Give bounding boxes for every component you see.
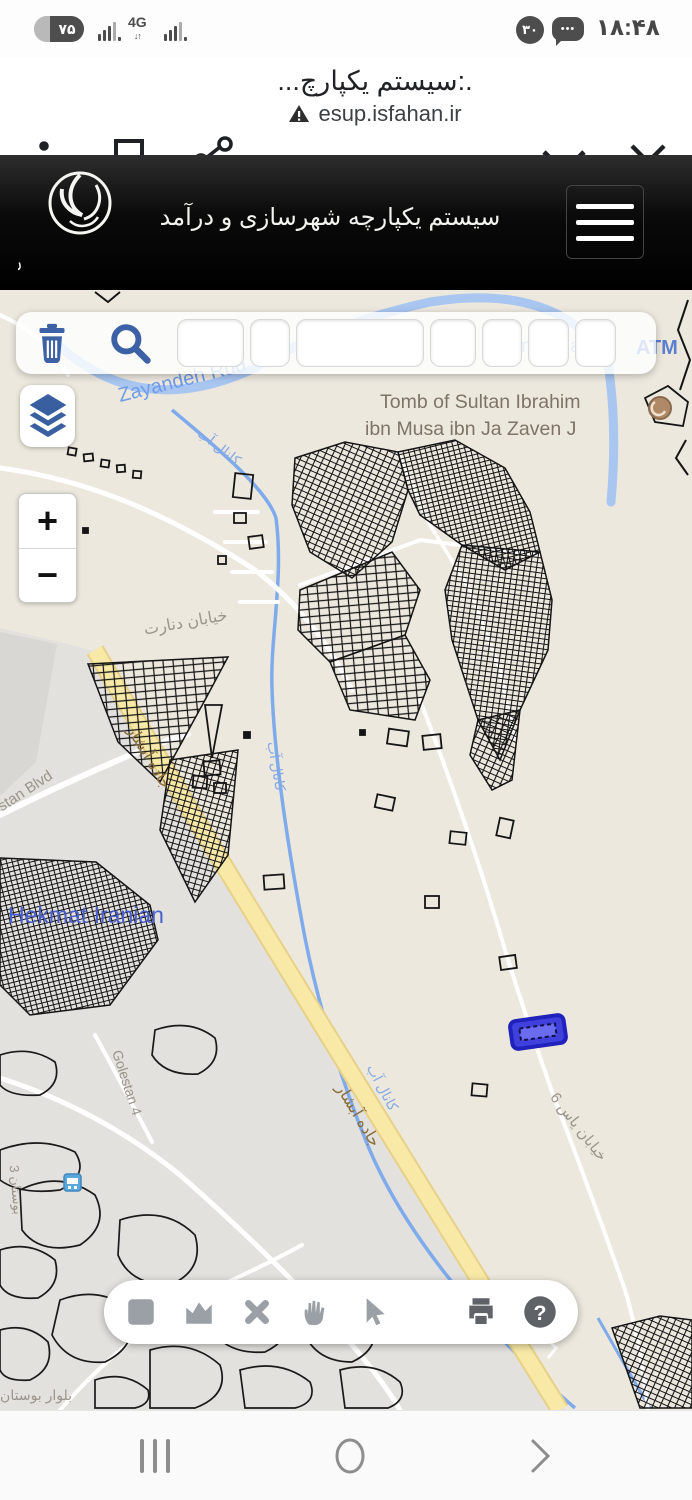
signal-icon-sim1 bbox=[98, 22, 121, 41]
status-bar: ۷۵ 4G↓↑ ۳۰ ••• ۱۸:۴۸ bbox=[0, 0, 692, 58]
selected-parcel[interactable] bbox=[509, 1014, 566, 1049]
help-icon[interactable]: ? bbox=[522, 1294, 558, 1330]
app-title: سیستم یکپارچه شهرسازی و درآمد bbox=[140, 203, 520, 232]
pan-hand-icon[interactable] bbox=[298, 1295, 332, 1329]
search-field-4[interactable] bbox=[430, 319, 476, 367]
measure-area-icon[interactable] bbox=[182, 1295, 216, 1329]
layers-button[interactable] bbox=[20, 385, 75, 447]
map-tools-toolbar: ? bbox=[104, 1280, 578, 1344]
tomb-poi-icon[interactable] bbox=[649, 397, 671, 419]
search-field-2[interactable] bbox=[250, 319, 290, 367]
search-field-3[interactable] bbox=[296, 319, 424, 367]
recents-button[interactable] bbox=[140, 1439, 170, 1473]
message-bubble-icon: ••• bbox=[552, 17, 584, 41]
search-icon[interactable] bbox=[108, 321, 152, 365]
app-header: شهرداری اصفهان سیستم یکپارچه شهرسازی و د… bbox=[0, 155, 692, 290]
browser-toolbar: .:سیستم یکپارچ... esup.isfahan.ir bbox=[0, 58, 692, 155]
page-url[interactable]: esup.isfahan.ir bbox=[318, 101, 461, 127]
search-field-5[interactable] bbox=[482, 319, 522, 367]
help-glyph: ? bbox=[533, 1301, 546, 1325]
map-label-bustan3: بلوار بوستان 3 bbox=[0, 1387, 72, 1404]
battery-percent: ۷۵ bbox=[50, 16, 84, 42]
signal-icon-sim2 bbox=[164, 22, 187, 41]
warning-icon[interactable] bbox=[288, 104, 310, 124]
logo-text: شهرداری اصفهان bbox=[18, 254, 26, 287]
page-title: .:سیستم یکپارچ... bbox=[240, 66, 510, 97]
map-container[interactable]: Saman Bank ATM Tomb of Sultan Ibrahim ib… bbox=[0, 290, 692, 1410]
map-toolbar bbox=[16, 312, 656, 374]
search-field-6[interactable] bbox=[528, 319, 569, 367]
hamburger-menu-button[interactable] bbox=[566, 185, 644, 259]
map-canvas[interactable]: Saman Bank ATM Tomb of Sultan Ibrahim ib… bbox=[0, 290, 692, 1410]
home-button[interactable] bbox=[334, 1437, 366, 1475]
map-label-hekmat: Hekmat Iranian bbox=[8, 902, 164, 928]
zoom-control: + − bbox=[18, 493, 77, 603]
bus-stop-icon[interactable] bbox=[64, 1174, 81, 1191]
search-field-1[interactable] bbox=[177, 319, 244, 367]
battery-icon: ۷۵ bbox=[34, 16, 84, 42]
map-label-tomb-1: Tomb of Sultan Ibrahim bbox=[380, 391, 581, 413]
back-button[interactable] bbox=[530, 1438, 552, 1474]
network-type-indicator: 4G↓↑ bbox=[128, 16, 147, 42]
print-icon[interactable] bbox=[464, 1295, 498, 1329]
status-time: ۱۸:۴۸ bbox=[596, 14, 686, 41]
search-field-7[interactable] bbox=[575, 319, 616, 367]
zoom-in-button[interactable]: + bbox=[19, 494, 76, 549]
zoom-out-button[interactable]: − bbox=[19, 549, 76, 603]
clear-icon[interactable] bbox=[240, 1295, 274, 1329]
phone-screen: ۷۵ 4G↓↑ ۳۰ ••• ۱۸:۴۸ .:سیستم یکپارچ... bbox=[0, 0, 692, 1500]
pointer-icon[interactable] bbox=[356, 1295, 390, 1329]
isfahan-municipality-logo: شهرداری اصفهان bbox=[18, 161, 138, 287]
layers-icon bbox=[26, 392, 70, 440]
android-nav-bar bbox=[0, 1410, 692, 1500]
map-label-tomb-2: ibn Musa ibn Ja Zaven J bbox=[365, 418, 576, 440]
notification-count-badge: ۳۰ bbox=[516, 16, 544, 44]
rect-select-icon[interactable] bbox=[124, 1295, 158, 1329]
trash-icon[interactable] bbox=[32, 321, 72, 365]
